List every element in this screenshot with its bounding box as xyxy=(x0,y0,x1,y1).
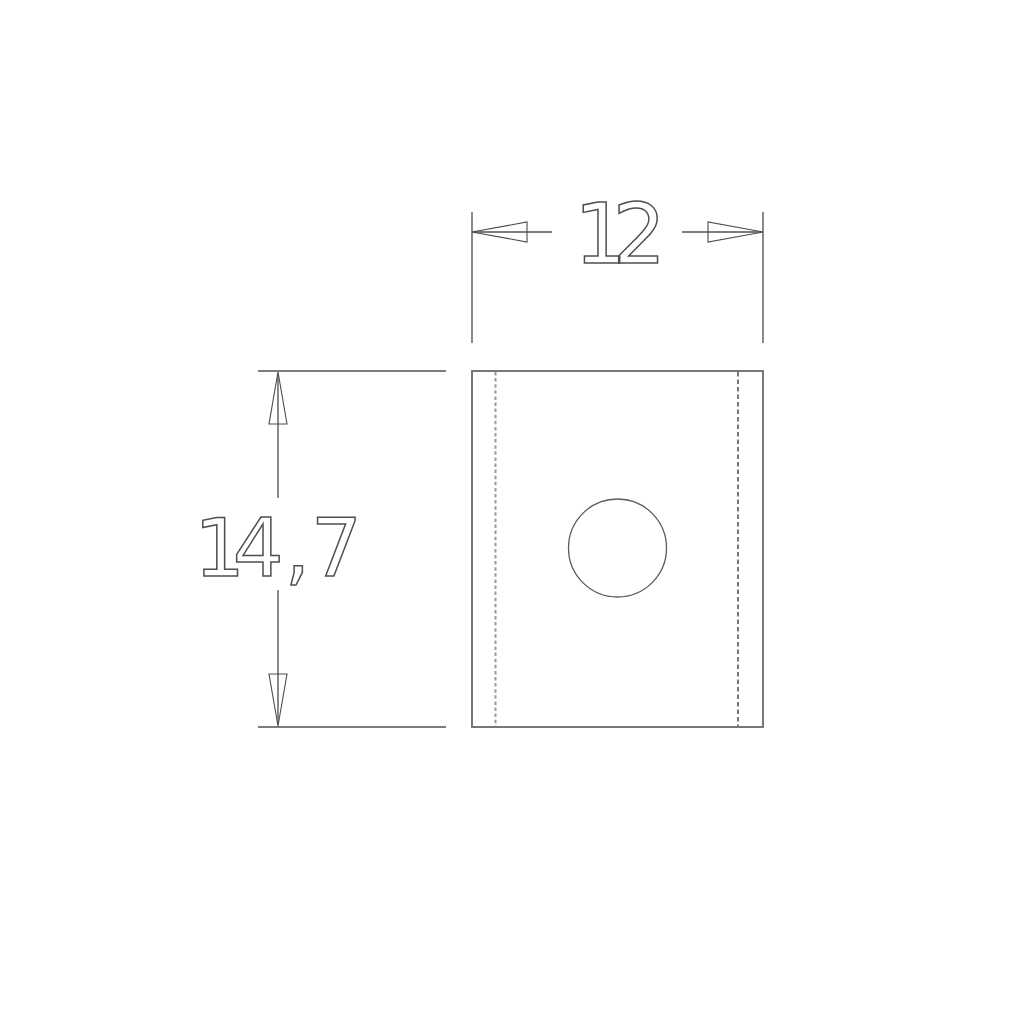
technical-drawing: 12 14 , 7 xyxy=(0,0,1024,1010)
arrowheads xyxy=(269,222,763,726)
part-outline xyxy=(472,371,763,727)
dimension-labels: 12 14 , 7 xyxy=(194,185,666,595)
width-dimension-label: 12 xyxy=(574,185,666,283)
drawing-viewport: 12 14 , 7 xyxy=(0,0,1024,1010)
height-dimension-label: 14 , 7 xyxy=(194,502,362,595)
hole-circle xyxy=(569,499,667,597)
part-view xyxy=(472,371,763,727)
